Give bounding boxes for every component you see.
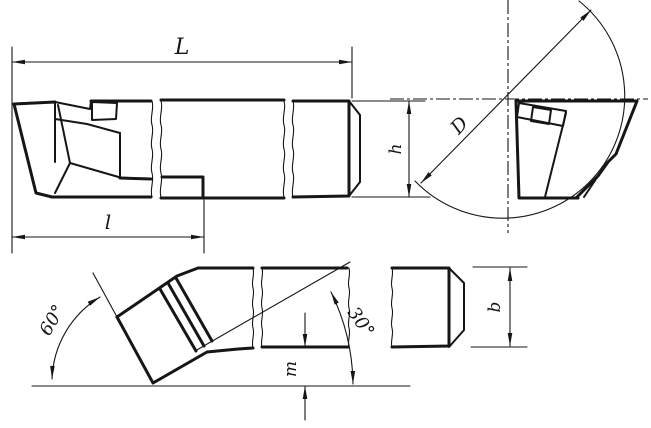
break-line — [151, 101, 152, 197]
dim-label-h: h — [386, 144, 406, 155]
drawing-canvas: L l h D — [0, 0, 651, 428]
dim-label-b: b — [485, 302, 505, 313]
neck-line-right — [70, 163, 122, 178]
head-face-right-edge — [577, 101, 637, 197]
diameter-line-D — [421, 10, 591, 183]
dimension-L: L — [12, 35, 352, 253]
dim-label-L: L — [174, 35, 190, 60]
break-line — [348, 268, 349, 348]
side-view: L l h — [12, 35, 430, 253]
plan-view-shank-end — [391, 268, 464, 348]
insert-braze-line-3 — [176, 278, 212, 341]
neck-line-left — [55, 163, 70, 193]
end-view-head — [516, 101, 637, 198]
dimension-h: h — [352, 101, 430, 197]
dimension-angle-60: 60° — [35, 273, 117, 379]
angle-arc-30 — [331, 292, 353, 384]
insert-bottom-edge — [55, 119, 120, 133]
dimension-m: m — [281, 313, 305, 420]
dim-label-30: 30° — [343, 303, 379, 341]
head-front-and-bottom-edge — [14, 104, 151, 197]
shank-end-chamfer — [349, 101, 360, 196]
shank-end-outline — [293, 101, 349, 197]
side-view-shank-middle — [160, 100, 284, 198]
dimension-b: b — [471, 267, 527, 347]
dim-label-D: D — [446, 113, 473, 140]
dim-label-l: l — [105, 210, 111, 234]
break-line — [252, 268, 253, 348]
head-ledge-line — [120, 178, 151, 179]
break-line — [160, 101, 161, 197]
break-line — [391, 268, 392, 348]
dim-label-m: m — [281, 361, 301, 377]
dimension-l: l — [12, 200, 204, 253]
insert-top-edge — [55, 101, 91, 109]
shank-end-chamfer — [449, 268, 464, 347]
shank-step-notch — [162, 177, 203, 198]
head-bottom-outline — [117, 317, 253, 383]
shank-end-outline — [392, 268, 449, 347]
head-face-left-bottom-edge — [516, 101, 578, 198]
plan-view: 60° 30° m b — [32, 262, 527, 420]
break-line — [283, 101, 284, 197]
braze-seam-line — [58, 105, 70, 163]
edge-extension-line-60 — [93, 273, 117, 317]
break-line — [292, 101, 293, 197]
engineering-drawing: L l h D — [0, 0, 651, 428]
insert-step-block — [92, 102, 117, 120]
edge-extension-line-30 — [195, 262, 350, 351]
break-line — [261, 268, 262, 348]
end-view: D — [390, 0, 648, 233]
plan-view-head — [117, 268, 254, 383]
side-view-head — [14, 101, 153, 197]
head-top-edge — [14, 102, 55, 104]
side-view-shank-end — [292, 101, 360, 197]
